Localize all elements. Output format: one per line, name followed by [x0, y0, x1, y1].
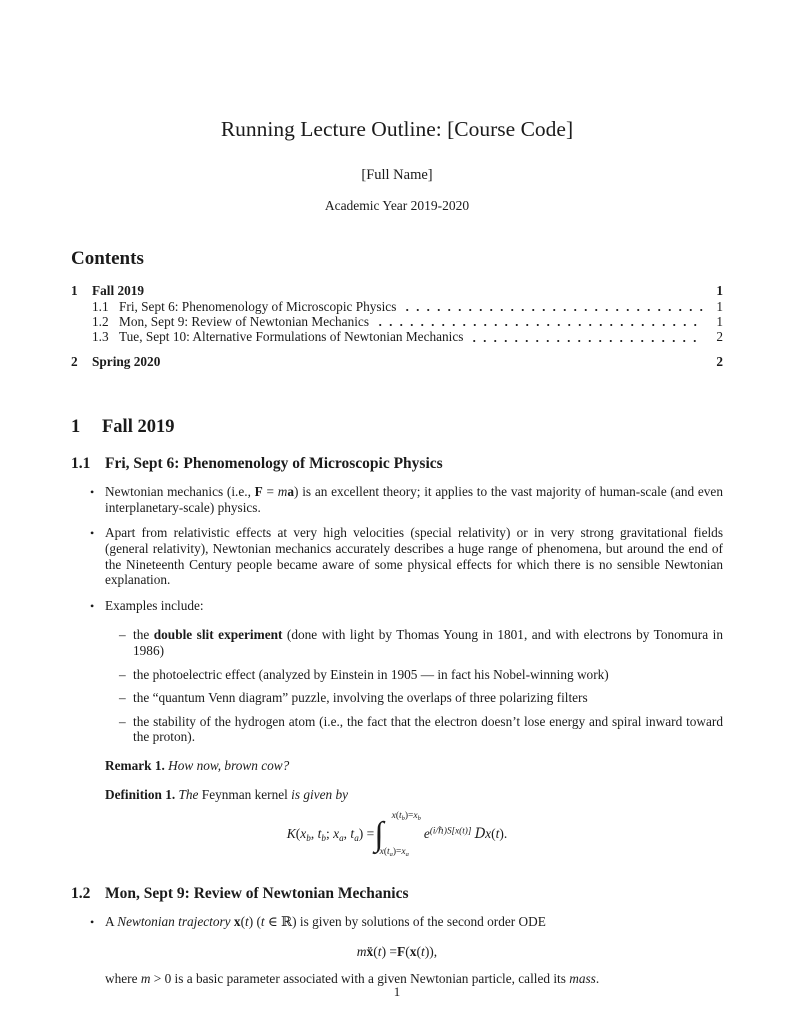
toc-page-number: 1: [709, 314, 723, 329]
page-content: Running Lecture Outline: [Course Code] […: [0, 0, 794, 987]
toc-entry-label: Fall 2019: [92, 283, 144, 298]
subitem-double-slit: – the double slit experiment (done with …: [71, 627, 723, 658]
subsection-heading-1-1: 1.1 Fri, Sept 6: Phenomenology of Micros…: [71, 454, 723, 474]
bullet-text: Newtonian mechanics (i.e., F = ma) is an…: [105, 484, 723, 515]
toc-entry-label: Tue, Sept 10: Alternative Formulations o…: [119, 329, 463, 344]
remark-paragraph: Remark 1. How now, brown cow?: [105, 758, 723, 774]
bullet-text: Apart from relativistic effects at very …: [105, 525, 723, 587]
toc-entry-number: 1.1: [92, 299, 119, 314]
bullet-item-examples: • Examples include:: [71, 598, 723, 615]
dash-marker: –: [71, 714, 133, 745]
toc-entry-label: Spring 2020: [92, 354, 160, 369]
leader-dots: [469, 333, 703, 345]
subitem-text: the “quantum Venn diagram” puzzle, invol…: [133, 690, 723, 706]
bullet-item-newtonian-mechanics: • Newtonian mechanics (i.e., F = ma) is …: [71, 484, 723, 515]
bullet-marker: •: [71, 525, 105, 587]
toc-entry-1: 1 Fall 2019 1: [71, 283, 723, 298]
toc-entry-1-3: 1.3 Tue, Sept 10: Alternative Formulatio…: [71, 329, 723, 344]
equation-integrand: e(i/ℏ)S[x(t)] Dx(t).: [424, 826, 507, 843]
toc-entry-1-1: 1.1 Fri, Sept 6: Phenomenology of Micros…: [71, 299, 723, 314]
subsection-title: Fri, Sept 6: Phenomenology of Microscopi…: [105, 454, 443, 474]
toc-page-number: 2: [709, 329, 723, 344]
dash-marker: –: [71, 627, 133, 658]
toc-entry-number: 1.2: [92, 314, 119, 329]
toc-page-number: 1: [709, 283, 723, 298]
document-title: Running Lecture Outline: [Course Code]: [71, 0, 723, 142]
table-of-contents: 1 Fall 2019 1 1.1 Fri, Sept 6: Phenomeno…: [71, 283, 723, 369]
definition-paragraph: Definition 1. The Feynman kernel is give…: [105, 787, 723, 803]
subsection-number: 1.2: [71, 884, 105, 904]
bullet-text: A Newtonian trajectory x(t) (t ∈ ℝ) is g…: [105, 914, 723, 931]
toc-entry-1-2: 1.2 Mon, Sept 9: Review of Newtonian Mec…: [71, 314, 723, 329]
bullet-marker: •: [71, 484, 105, 515]
section-title: Fall 2019: [102, 415, 174, 439]
subsection-heading-1-2: 1.2 Mon, Sept 9: Review of Newtonian Mec…: [71, 884, 723, 904]
page-number: 1: [0, 984, 794, 1000]
subitem-text: the photoelectric effect (analyzed by Ei…: [133, 667, 723, 683]
subitem-photoelectric: – the photoelectric effect (analyzed by …: [71, 667, 723, 683]
dash-marker: –: [71, 690, 133, 706]
bullet-marker: •: [71, 914, 105, 931]
leader-dots: [402, 302, 703, 314]
document-date: Academic Year 2019-2020: [71, 198, 723, 214]
bullet-item-newtonian-trajectory: • A Newtonian trajectory x(t) (t ∈ ℝ) is…: [71, 914, 723, 931]
toc-entry-label: Mon, Sept 9: Review of Newtonian Mechani…: [119, 314, 369, 329]
toc-page-number: 2: [709, 354, 723, 369]
subitem-text: the double slit experiment (done with li…: [133, 627, 723, 658]
toc-page-number: 1: [709, 299, 723, 314]
bullet-text: Examples include:: [105, 598, 723, 615]
toc-entry-number: 1.3: [92, 329, 119, 344]
leader-dots: [375, 317, 703, 329]
toc-entry-number: 2: [71, 354, 92, 369]
subsection-number: 1.1: [71, 454, 105, 474]
subitem-venn-diagram: – the “quantum Venn diagram” puzzle, inv…: [71, 690, 723, 706]
equation-lhs: K(xb, tb; xa, ta) =: [287, 826, 375, 842]
bullet-item-relativistic-effects: • Apart from relativistic effects at ver…: [71, 525, 723, 587]
subitem-text: the stability of the hydrogen atom (i.e.…: [133, 714, 723, 745]
toc-entry-label: Fri, Sept 6: Phenomenology of Microscopi…: [119, 299, 396, 314]
section-heading-fall-2019: 1 Fall 2019: [71, 415, 723, 439]
contents-heading: Contents: [71, 247, 723, 271]
document-page: Running Lecture Outline: [Course Code] […: [0, 0, 794, 1028]
dash-marker: –: [71, 667, 133, 683]
bullet-marker: •: [71, 598, 105, 615]
integral-sign: ∫: [374, 818, 383, 852]
subsection-title: Mon, Sept 9: Review of Newtonian Mechani…: [105, 884, 409, 904]
document-author: [Full Name]: [71, 168, 723, 184]
subitem-hydrogen-atom: – the stability of the hydrogen atom (i.…: [71, 714, 723, 745]
section-number: 1: [71, 415, 102, 439]
integral-lower-limit: x(ta)=xa: [380, 847, 421, 857]
examples-sublist: – the double slit experiment (done with …: [71, 627, 723, 745]
toc-entry-number: 1: [71, 283, 92, 298]
equation-newton-ode: m ẍ(t) = F(x(t)),: [71, 944, 723, 960]
integral-upper-limit: x(tb)=xb: [392, 811, 421, 821]
integral-limits: x(tb)=xb x(ta)=xa: [384, 811, 421, 857]
toc-entry-2: 2 Spring 2020 2: [71, 354, 723, 369]
equation-feynman-kernel: K(xb, tb; xa, ta) = ∫ x(tb)=xb x(ta)=xa …: [71, 808, 723, 860]
